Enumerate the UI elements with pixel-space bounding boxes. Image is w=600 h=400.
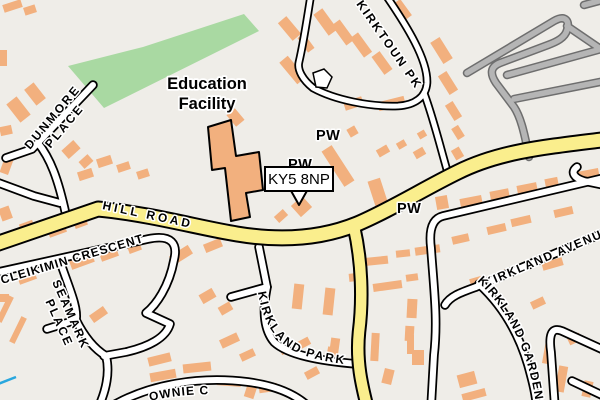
building	[407, 299, 418, 318]
building	[0, 50, 7, 66]
building	[405, 326, 415, 341]
map-viewport: DUNMORE PLACE HILL ROAD CLEIKIMIN CRESCE…	[0, 0, 600, 400]
building	[396, 249, 411, 257]
education-line2: Facility	[179, 95, 237, 113]
building	[370, 333, 379, 361]
pw-label-3: PW	[397, 201, 421, 217]
building	[435, 195, 449, 210]
building	[412, 350, 424, 365]
map-canvas[interactable]: DUNMORE PLACE HILL ROAD CLEIKIMIN CRESCE…	[0, 0, 600, 400]
pw-label-1: PW	[316, 128, 340, 144]
education-line1: Education	[167, 75, 247, 93]
callout-postcode-text: KY5 8NP	[268, 171, 330, 188]
